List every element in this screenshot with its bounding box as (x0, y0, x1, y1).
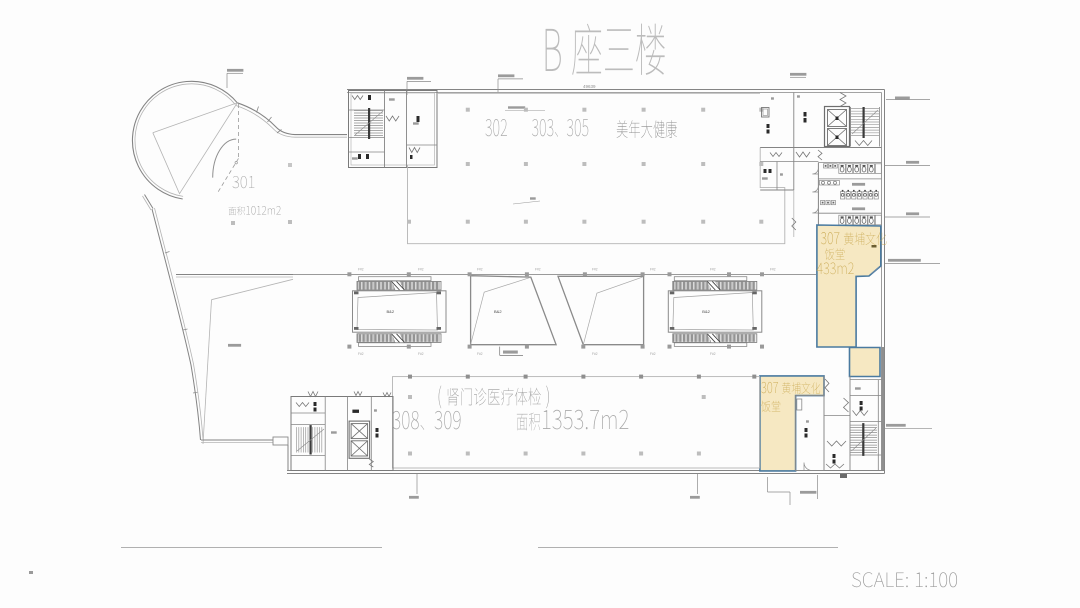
svg-text:F#2: F#2 (358, 352, 364, 356)
svg-text:F#2: F#2 (358, 268, 364, 272)
svg-text:F#2: F#2 (535, 268, 541, 272)
svg-text:49639: 49639 (583, 84, 596, 89)
svg-text:F#2: F#2 (592, 268, 598, 272)
svg-text:F#2: F#2 (770, 268, 776, 272)
svg-text:F#2: F#2 (592, 352, 598, 356)
svg-text:F#2: F#2 (650, 268, 656, 272)
svg-text:F#2: F#2 (418, 268, 424, 272)
svg-text:F#2: F#2 (477, 268, 483, 272)
svg-text:B&2: B&2 (702, 309, 710, 314)
svg-text:B&2: B&2 (494, 309, 502, 314)
svg-text:F#2: F#2 (710, 352, 716, 356)
svg-text:B&2: B&2 (387, 309, 395, 314)
svg-text:F#2: F#2 (418, 352, 424, 356)
svg-text:F#2: F#2 (650, 352, 656, 356)
svg-text:F#2: F#2 (477, 352, 483, 356)
svg-text:F#2: F#2 (710, 268, 716, 272)
